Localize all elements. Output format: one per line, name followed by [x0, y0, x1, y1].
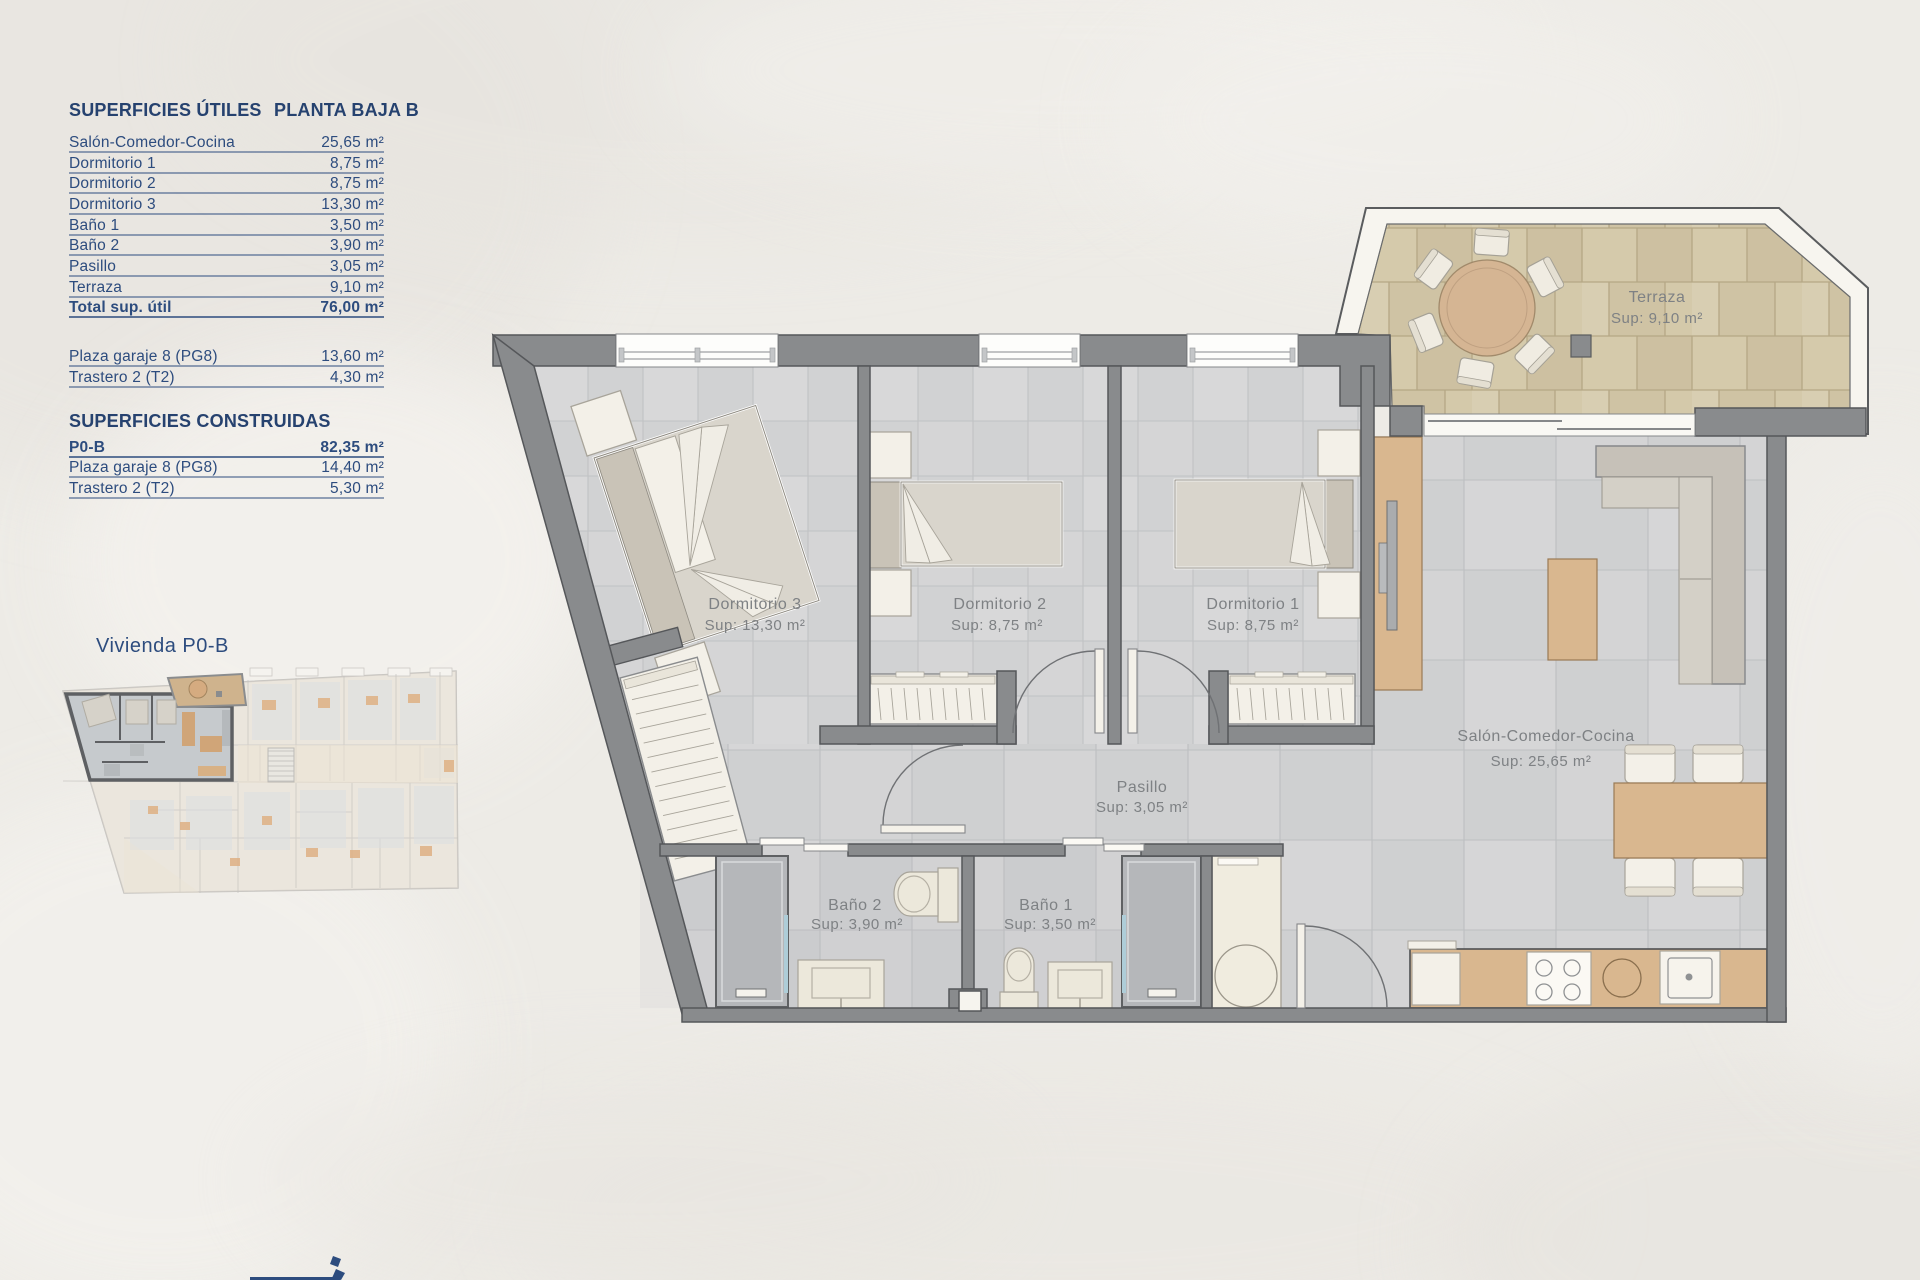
svg-text:P0-B: P0-B: [69, 439, 105, 456]
svg-text:Pasillo: Pasillo: [1117, 779, 1168, 796]
svg-text:SUPERFICIES ÚTILES: SUPERFICIES ÚTILES: [69, 99, 262, 120]
svg-text:Sup: 8,75 m²: Sup: 8,75 m²: [1207, 617, 1299, 634]
svg-text:Dormitorio 3: Dormitorio 3: [708, 596, 801, 613]
svg-text:Baño 1: Baño 1: [1019, 897, 1073, 914]
svg-text:Total sup. útil: Total sup. útil: [69, 299, 172, 316]
svg-text:14,40 m²: 14,40 m²: [321, 459, 384, 476]
svg-text:Plaza garaje 8 (PG8): Plaza garaje 8 (PG8): [69, 348, 218, 365]
svg-text:Salón-Comedor-Cocina: Salón-Comedor-Cocina: [1457, 728, 1634, 745]
svg-text:76,00 m²: 76,00 m²: [320, 299, 384, 316]
svg-text:25,65 m²: 25,65 m²: [321, 134, 384, 151]
svg-text:Terraza: Terraza: [1629, 289, 1686, 306]
svg-text:Salón-Comedor-Cocina: Salón-Comedor-Cocina: [69, 134, 235, 151]
svg-text:Sup: 3,05 m²: Sup: 3,05 m²: [1096, 799, 1188, 816]
svg-text:Sup: 3,90 m²: Sup: 3,90 m²: [811, 916, 903, 933]
svg-text:Sup: 8,75 m²: Sup: 8,75 m²: [951, 617, 1043, 634]
svg-text:3,50 m²: 3,50 m²: [330, 217, 384, 234]
svg-text:Terraza: Terraza: [69, 279, 122, 296]
svg-text:8,75 m²: 8,75 m²: [330, 175, 384, 192]
svg-text:Baño 2: Baño 2: [69, 237, 119, 254]
svg-text:Pasillo: Pasillo: [69, 258, 116, 275]
svg-text:4,30 m²: 4,30 m²: [330, 369, 384, 386]
svg-text:5,30 m²: 5,30 m²: [330, 480, 384, 497]
svg-text:Trastero 2 (T2): Trastero 2 (T2): [69, 369, 175, 386]
svg-text:Plaza garaje 8 (PG8): Plaza garaje 8 (PG8): [69, 459, 218, 476]
svg-text:Dormitorio 3: Dormitorio 3: [69, 196, 156, 213]
svg-text:Sup: 25,65 m²: Sup: 25,65 m²: [1491, 753, 1592, 770]
svg-text:13,60 m²: 13,60 m²: [321, 348, 384, 365]
svg-text:PLANTA BAJA B: PLANTA BAJA B: [274, 100, 419, 120]
svg-text:Sup: 3,50 m²: Sup: 3,50 m²: [1004, 916, 1096, 933]
svg-text:82,35 m²: 82,35 m²: [320, 439, 384, 456]
svg-text:8,75 m²: 8,75 m²: [330, 155, 384, 172]
svg-text:13,30 m²: 13,30 m²: [321, 196, 384, 213]
svg-text:Sup: 13,30 m²: Sup: 13,30 m²: [705, 617, 806, 634]
svg-text:Dormitorio 2: Dormitorio 2: [69, 175, 156, 192]
svg-text:3,90 m²: 3,90 m²: [330, 237, 384, 254]
svg-text:Dormitorio 1: Dormitorio 1: [69, 155, 156, 172]
svg-text:SUPERFICIES CONSTRUIDAS: SUPERFICIES CONSTRUIDAS: [69, 411, 331, 431]
svg-text:Dormitorio 1: Dormitorio 1: [1206, 596, 1299, 613]
svg-text:Vivienda P0-B: Vivienda P0-B: [96, 635, 229, 657]
svg-text:3,05 m²: 3,05 m²: [330, 258, 384, 275]
svg-text:Sup: 9,10 m²: Sup: 9,10 m²: [1611, 310, 1703, 327]
svg-text:9,10 m²: 9,10 m²: [330, 279, 384, 296]
svg-text:Trastero 2 (T2): Trastero 2 (T2): [69, 480, 175, 497]
svg-text:Baño 2: Baño 2: [828, 897, 882, 914]
svg-text:Baño 1: Baño 1: [69, 217, 119, 234]
svg-text:Dormitorio 2: Dormitorio 2: [953, 596, 1046, 613]
